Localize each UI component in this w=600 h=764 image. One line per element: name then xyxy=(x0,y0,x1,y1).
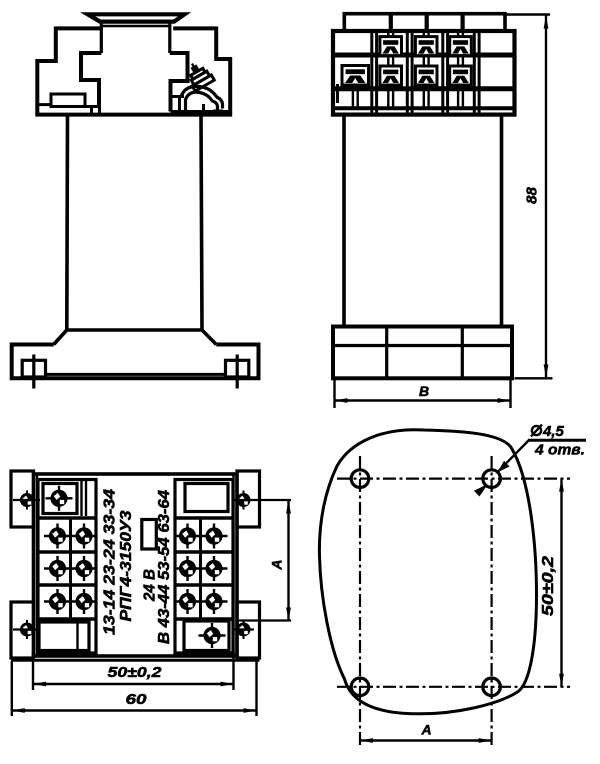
svg-text:50±0,2: 50±0,2 xyxy=(540,556,557,616)
svg-text:РПГ4-3150У3: РПГ4-3150У3 xyxy=(118,510,135,621)
svg-text:В 43-44 53-54 63-64: В 43-44 53-54 63-64 xyxy=(156,490,173,644)
svg-text:60: 60 xyxy=(126,691,148,708)
svg-text:13-14 23-24 33-34: 13-14 23-24 33-34 xyxy=(102,489,119,635)
svg-text:88: 88 xyxy=(524,187,541,204)
svg-text:50±0,2: 50±0,2 xyxy=(108,664,163,681)
svg-text:4 отв.: 4 отв. xyxy=(534,442,585,459)
svg-text:A: A xyxy=(420,722,431,738)
svg-text:4,5: 4,5 xyxy=(542,423,565,440)
svg-text:B: B xyxy=(419,383,429,399)
svg-text:A: A xyxy=(269,559,285,570)
